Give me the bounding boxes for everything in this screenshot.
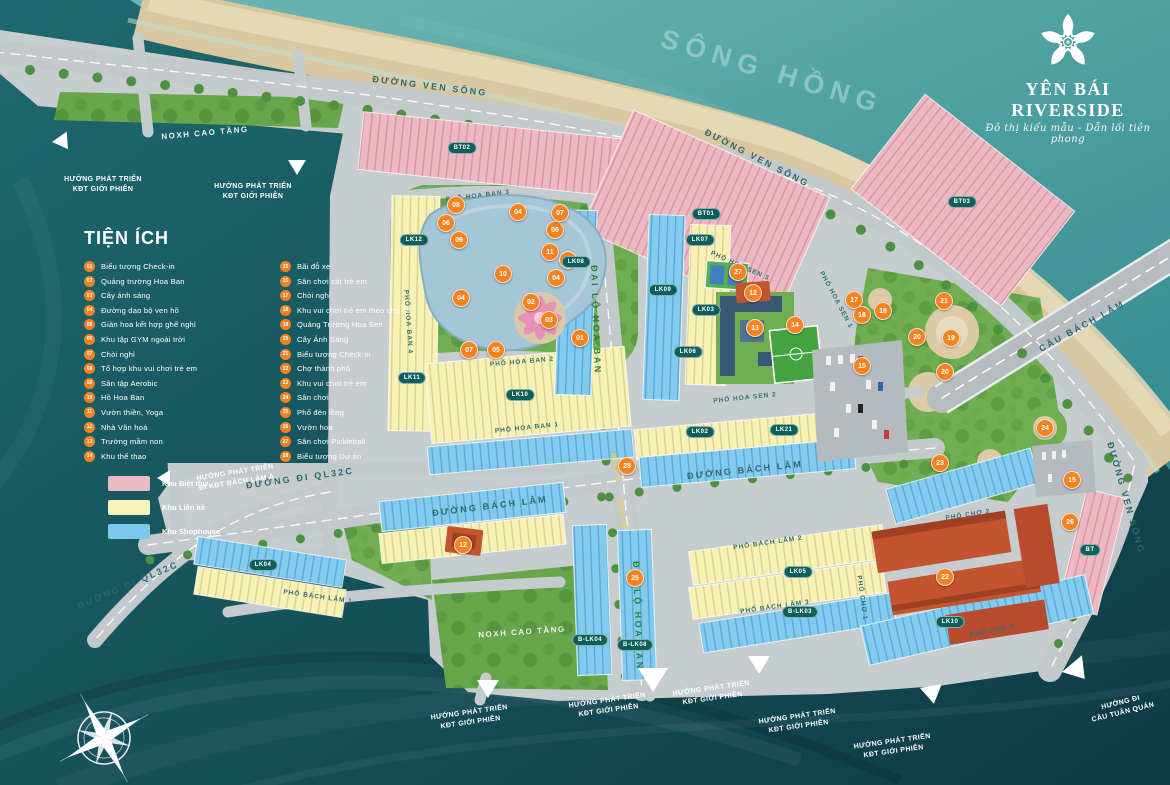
legend-zone-row: Khu Biệt thự	[108, 476, 444, 491]
map-marker: 11	[541, 243, 559, 261]
map-marker: 23	[931, 454, 949, 472]
legend-item: 16Sân chơi cát trẻ em	[280, 276, 411, 287]
block-label: B-LK03	[782, 606, 818, 618]
legend-item-number: 11	[84, 407, 95, 418]
legend-item-label: Trường mầm non	[101, 437, 163, 446]
block-label: LK02	[686, 426, 715, 438]
map-marker-number: 13	[751, 325, 759, 332]
area-label: NOXH CAO TẦNG	[161, 125, 249, 142]
legend-item-number: 03	[84, 290, 95, 301]
legend-item: 04Đường dạo bộ ven hồ	[84, 305, 266, 316]
legend-item: 01Biểu tượng Check-in	[84, 261, 266, 272]
map-marker: 18	[874, 302, 892, 320]
road-label: KHU B	[615, 498, 629, 529]
legend-item: 07Chòi nghỉ	[84, 349, 266, 360]
legend-item-label: Khu vui chơi trẻ em theo chủ đề	[297, 306, 411, 315]
direction-label: HƯỚNG PHÁT TRIỂNKĐT GIỚI PHIÊN	[430, 703, 510, 733]
map-marker: 25	[626, 569, 644, 587]
map-marker-number: 20	[941, 369, 949, 376]
legend-item-label: Sân tập Aerobic	[101, 379, 158, 388]
block-label: LK08	[562, 256, 591, 268]
legend-item-number: 04	[84, 305, 95, 316]
legend-item: 06Khu tập GYM ngoài trời	[84, 334, 266, 345]
legend-zone-row: Khu Shophouse	[108, 524, 444, 539]
map-marker: 09	[450, 231, 468, 249]
map-marker-number: 08	[452, 202, 460, 209]
road-label: PHỐ CHỢ 3	[969, 623, 1015, 639]
map-marker: 14	[786, 316, 804, 334]
legend-item-label: Giàn hoa kết hợp ghế nghỉ	[101, 320, 196, 329]
road-label: PHỐ HOA SEN 2	[713, 391, 777, 405]
block-label: LK06	[674, 346, 703, 358]
map-marker-number: 23	[936, 460, 944, 467]
map-marker-number: 22	[941, 574, 949, 581]
map-marker: 02	[522, 293, 540, 311]
map-marker: 06	[546, 221, 564, 239]
legend-item-label: Cây Ánh Sáng	[297, 335, 348, 344]
block-label: LK10	[936, 616, 965, 628]
legend-item-number: 18	[280, 305, 291, 316]
legend-item: 14Khu thể thao	[84, 451, 266, 462]
legend-item-number: 28	[280, 451, 291, 462]
map-marker: 07	[551, 204, 569, 222]
map-marker: 04	[509, 203, 527, 221]
map-marker: 20	[936, 363, 954, 381]
legend-item: 08Tổ hợp khu vui chơi trẻ em	[84, 363, 266, 374]
legend-item-label: Quảng Trường Hoa Sen	[297, 320, 383, 329]
legend-item-label: Vườn thiền, Yoga	[101, 408, 163, 417]
block-label: BT01	[692, 208, 721, 220]
legend-item-number: 20	[280, 334, 291, 345]
project-logo: YÊN BÁI RIVERSIDE Đô thị kiểu mẫu - Dẫn …	[968, 12, 1168, 145]
legend-item-label: Biểu tượng Check-in	[297, 350, 371, 359]
direction-label: HƯỚNG PHÁT TRIỂNKĐT GIỚI PHIÊN	[214, 182, 292, 202]
zone-color-swatch	[108, 524, 150, 539]
legend-item-label: Biểu tượng Dự án	[297, 452, 361, 461]
road-label: PHỐ BÁCH LẪM 1	[283, 589, 353, 606]
road-label: PHỐ CHỢ 1	[855, 575, 868, 621]
legend-item: 21Biểu tượng Check-in	[280, 349, 411, 360]
map-marker-number: 04	[457, 295, 465, 302]
legend-item-number: 01	[84, 261, 95, 272]
map-marker: 12	[744, 284, 762, 302]
direction-label-line: KĐT GIỚI PHIÊN	[64, 185, 142, 195]
map-marker-number: 24	[1041, 425, 1049, 432]
legend-item-label: Tổ hợp khu vui chơi trẻ em	[101, 364, 197, 373]
legend-column-1: 01Biểu tượng Check-in02Quảng trường Hoa …	[84, 261, 266, 462]
map-marker: 27	[729, 263, 747, 281]
block-label: LK09	[649, 284, 678, 296]
block-label: LK07	[686, 234, 715, 246]
legend-item-number: 22	[280, 363, 291, 374]
road-label: PHỐ CHỢ 2	[945, 508, 991, 522]
legend-item: 20Cây Ánh Sáng	[280, 334, 411, 345]
legend-item-number: 08	[84, 363, 95, 374]
direction-label-line: HƯỚNG PHÁT TRIỂN	[64, 175, 142, 185]
legend-zone-swatches: Khu Biệt thựKhu Liền kềKhu Shophouse	[108, 476, 444, 539]
zone-label: Khu Biệt thự	[162, 479, 208, 488]
project-name: YÊN BÁI RIVERSIDE	[968, 79, 1168, 121]
legend-item-number: 23	[280, 378, 291, 389]
map-marker-number: 07	[556, 210, 564, 217]
river-name-label: SÔNG HỒNG	[657, 23, 887, 120]
legend-item-label: Phố đèn lồng	[297, 408, 344, 417]
legend-item-label: Khu vui chơi trẻ em	[297, 379, 367, 388]
legend-item-number: 26	[280, 422, 291, 433]
map-marker: 12	[454, 536, 472, 554]
legend-item-number: 16	[280, 276, 291, 287]
road-label: ĐƯỜNG BÁCH LẪM	[687, 459, 804, 481]
area-label: NOXH CAO TẦNG	[478, 624, 566, 639]
legend-item-number: 25	[280, 407, 291, 418]
legend-item-number: 27	[280, 436, 291, 447]
map-marker: 04	[547, 269, 565, 287]
legend-zone-row: Khu Liền kề	[108, 500, 444, 515]
legend-item-label: Đường dạo bộ ven hồ	[101, 306, 179, 315]
map-marker-number: 10	[499, 271, 507, 278]
map-marker: 28	[618, 457, 636, 475]
legend-item-number: 13	[84, 436, 95, 447]
legend-item: 22Chợ thành phố	[280, 363, 411, 374]
map-marker: 07	[460, 341, 478, 359]
map-marker-number: 12	[749, 290, 757, 297]
legend-item: 28Biểu tượng Dự án	[280, 451, 411, 462]
block-label: LK05	[784, 566, 813, 578]
direction-label: HƯỚNG PHÁT TRIỂNKĐT GIỚI PHIÊN	[853, 732, 933, 762]
map-marker-number: 02	[527, 299, 535, 306]
legend-item: 03Cây ánh sáng	[84, 290, 266, 301]
map-marker: 10	[494, 265, 512, 283]
legend-item-number: 02	[84, 276, 95, 287]
legend-item-number: 12	[84, 422, 95, 433]
map-marker-number: 27	[734, 269, 742, 276]
legend-item: 12Nhà Văn hoá	[84, 422, 266, 433]
legend-item: 10Hồ Hoa Ban	[84, 392, 266, 403]
legend-item-label: Sân chơi cát trẻ em	[297, 277, 367, 286]
legend-item-number: 21	[280, 349, 291, 360]
legend-item: 24Sân chơi	[280, 392, 411, 403]
map-marker-number: 28	[623, 463, 631, 470]
legend-item: 05Giàn hoa kết hợp ghế nghỉ	[84, 319, 266, 330]
map-marker-number: 04	[514, 209, 522, 216]
road-label: ĐƯỜNG ĐI QL32C	[76, 559, 180, 611]
map-marker: 01	[571, 329, 589, 347]
map-marker: 03	[540, 311, 558, 329]
legend-column-2: 15Bãi đỗ xe16Sân chơi cát trẻ em17Chòi n…	[280, 261, 411, 462]
block-label: LK03	[692, 304, 721, 316]
map-marker-number: 18	[879, 308, 887, 315]
legend-item-number: 15	[280, 261, 291, 272]
legend-item: 27Sân chơi Pickleball	[280, 436, 411, 447]
legend-panel: TIỆN ÍCH 01Biểu tượng Check-in02Quảng tr…	[84, 228, 444, 539]
legend-item: 15Bãi đỗ xe	[280, 261, 411, 272]
road-label: ĐƯỜNG VEN SÔNG	[372, 74, 488, 98]
map-marker-number: 04	[552, 275, 560, 282]
block-label: LK21	[770, 424, 799, 436]
map-marker-number: 17	[850, 297, 858, 304]
legend-item-label: Chòi nghỉ	[101, 350, 135, 359]
legend-item-number: 10	[84, 392, 95, 403]
block-label: B-LK08	[617, 639, 653, 651]
map-marker-number: 07	[465, 347, 473, 354]
legend-item-label: Bãi đỗ xe	[297, 262, 330, 271]
map-marker: 15	[853, 357, 871, 375]
map-marker-number: 01	[576, 335, 584, 342]
legend-item-number: 19	[280, 319, 291, 330]
map-marker-number: 15	[858, 363, 866, 370]
road-label: ĐƯỜNG VEN SÔNG	[703, 127, 811, 189]
map-marker-number: 26	[1066, 519, 1074, 526]
block-label: LK04	[249, 559, 278, 571]
block-label: BT	[1080, 544, 1101, 556]
direction-label: HƯỚNG PHÁT TRIỂNKĐT GIỚI PHIÊN	[64, 175, 142, 195]
legend-item: 25Phố đèn lồng	[280, 407, 411, 418]
map-marker-number: 20	[913, 334, 921, 341]
legend-item-label: Nhà Văn hoá	[101, 423, 148, 432]
map-marker-number: 19	[947, 335, 955, 342]
direction-label: HƯỚNG PHÁT TRIỂNKĐT GIỚI PHIÊN	[568, 691, 648, 721]
map-marker-number: 03	[545, 317, 553, 324]
legend-title: TIỆN ÍCH	[84, 228, 444, 249]
legend-item-number: 07	[84, 349, 95, 360]
zone-color-swatch	[108, 500, 150, 515]
map-marker: 20	[908, 328, 926, 346]
direction-label-line: KĐT GIỚI PHIÊN	[214, 192, 292, 202]
road-label: PHỐ BÁCH LẪM 2	[733, 535, 803, 552]
map-marker-number: 09	[455, 237, 463, 244]
zone-label: Khu Shophouse	[162, 527, 220, 536]
map-marker-number: 11	[546, 249, 553, 256]
map-marker: 22	[936, 568, 954, 586]
map-marker-number: 06	[442, 220, 450, 227]
map-marker-number: 06	[551, 227, 559, 234]
map-marker: 17	[845, 291, 863, 309]
legend-item-label: Biểu tượng Check-in	[101, 262, 175, 271]
legend-item-label: Cây ánh sáng	[101, 291, 150, 300]
legend-item-label: Quảng trường Hoa Ban	[101, 277, 185, 286]
legend-item: 13Trường mầm non	[84, 436, 266, 447]
road-label: PHỐ HOA BAN 1	[495, 421, 560, 435]
legend-item-number: 17	[280, 290, 291, 301]
map-marker-number: 15	[1068, 477, 1076, 484]
legend-item: 18Khu vui chơi trẻ em theo chủ đề	[280, 305, 411, 316]
legend-item-label: Hồ Hoa Ban	[101, 393, 144, 402]
block-label: LK10	[506, 389, 535, 401]
map-marker: 21	[935, 292, 953, 310]
block-label: B-LK04	[572, 634, 608, 646]
legend-item: 23Khu vui chơi trẻ em	[280, 378, 411, 389]
block-label: BT03	[948, 196, 977, 208]
legend-item-label: Chợ thành phố	[297, 364, 350, 373]
map-marker: 13	[746, 319, 764, 337]
legend-item-number: 24	[280, 392, 291, 403]
direction-label: HƯỚNG PHÁT TRIỂNKĐT GIỚI PHIÊN	[758, 707, 838, 737]
direction-label-line: HƯỚNG PHÁT TRIỂN	[214, 182, 292, 192]
zone-color-swatch	[108, 476, 150, 491]
block-label: BT02	[448, 142, 477, 154]
legend-item: 19Quảng Trường Hoa Sen	[280, 319, 411, 330]
map-marker-number: 21	[940, 298, 948, 305]
road-label: ĐƯỜNG BÁCH LẪM	[432, 494, 549, 518]
zone-label: Khu Liền kề	[162, 503, 205, 512]
legend-item: 02Quảng trường Hoa Ban	[84, 276, 266, 287]
map-marker: 15	[1063, 471, 1081, 489]
legend-item-number: 05	[84, 319, 95, 330]
project-tagline: Đô thị kiểu mẫu - Dẫn lối tiên phong	[968, 123, 1168, 145]
map-marker: 05	[487, 341, 505, 359]
legend-item-label: Vườn hoa	[297, 423, 333, 432]
road-label: CẦU BÁCH LẪM	[1037, 298, 1126, 353]
legend-item-number: 06	[84, 334, 95, 345]
map-marker-number: 14	[791, 322, 799, 329]
master-plan-map: SÔNG HỒNG ĐƯỜNG VEN SÔNGĐƯỜNG VEN SÔNGĐƯ…	[0, 0, 1170, 785]
map-marker: 24	[1036, 419, 1054, 437]
direction-label: HƯỚNG PHÁT TRIỂNKĐT GIỚI PHIÊN	[672, 679, 752, 709]
map-marker-number: 16	[858, 312, 866, 319]
legend-item: 11Vườn thiền, Yoga	[84, 407, 266, 418]
direction-label: HƯỚNG ĐICẦU TUẦN QUÁN	[1088, 691, 1155, 726]
legend-item-label: Khu thể thao	[101, 452, 146, 461]
legend-item: 17Chòi nghỉ	[280, 290, 411, 301]
legend-item-label: Sân chơi Pickleball	[297, 437, 365, 446]
map-marker: 04	[452, 289, 470, 307]
map-marker: 26	[1061, 513, 1079, 531]
road-label: ĐƯỜNG VEN SÔNG	[1105, 441, 1147, 555]
map-marker-number: 25	[631, 575, 639, 582]
legend-item: 26Vườn hoa	[280, 422, 411, 433]
map-marker-number: 05	[492, 347, 500, 354]
map-marker: 08	[447, 196, 465, 214]
legend-item-number: 09	[84, 378, 95, 389]
road-label: ĐẠI LỘ HOA BAN	[589, 265, 603, 375]
lotus-flower-icon	[1036, 12, 1100, 70]
map-marker: 19	[942, 329, 960, 347]
legend-item-label: Chòi nghỉ	[297, 291, 331, 300]
legend-item: 09Sân tập Aerobic	[84, 378, 266, 389]
legend-item-number: 14	[84, 451, 95, 462]
map-marker-number: 12	[459, 542, 467, 549]
legend-item-label: Khu tập GYM ngoài trời	[101, 335, 185, 344]
legend-item-label: Sân chơi	[297, 393, 329, 402]
